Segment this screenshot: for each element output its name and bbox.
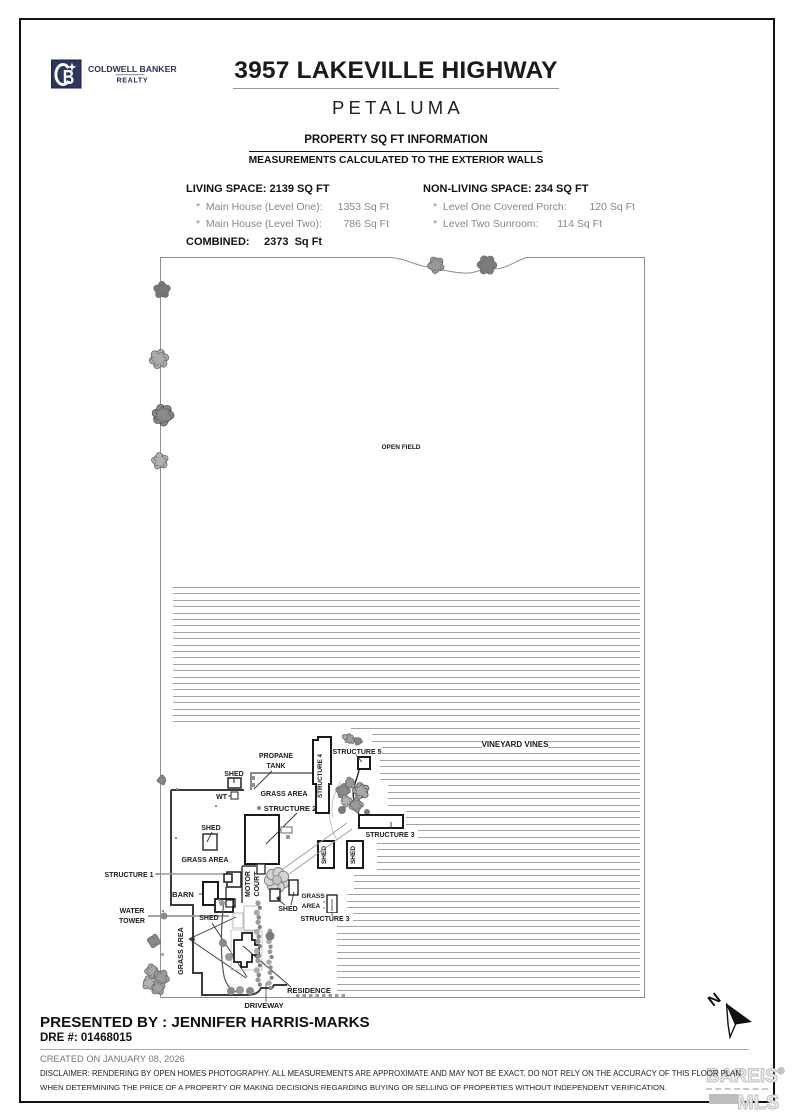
svg-text:AREA: AREA: [302, 903, 321, 910]
svg-text:GRASS: GRASS: [301, 893, 325, 900]
svg-text:GRASS AREA: GRASS AREA: [176, 927, 185, 975]
svg-text:STRUCTURE 1: STRUCTURE 1: [104, 872, 153, 879]
svg-text:N: N: [705, 990, 724, 1010]
svg-text:GRASS AREA: GRASS AREA: [260, 790, 307, 798]
svg-text:GRASS AREA: GRASS AREA: [181, 856, 228, 864]
svg-text:WATER: WATER: [120, 908, 145, 915]
svg-text:PROPANE: PROPANE: [259, 753, 293, 760]
svg-text:STRUCTURE 3: STRUCTURE 3: [300, 916, 349, 923]
svg-text:SHED: SHED: [224, 771, 243, 778]
svg-text:SHED: SHED: [278, 906, 297, 913]
svg-text:WT: WT: [216, 794, 228, 801]
svg-text:STRUCTURE 5: STRUCTURE 5: [332, 749, 381, 756]
svg-text:STRUCTURE 3: STRUCTURE 3: [365, 832, 414, 839]
svg-text:TANK: TANK: [267, 763, 286, 770]
svg-text:OPEN FIELD: OPEN FIELD: [381, 444, 420, 451]
svg-text:MOTOR: MOTOR: [245, 871, 252, 897]
svg-text:RESIDENCE: RESIDENCE: [287, 986, 331, 995]
svg-text:STRUCTURE 2: STRUCTURE 2: [264, 804, 317, 813]
svg-text:BARN: BARN: [172, 890, 194, 899]
svg-text:SHED: SHED: [350, 846, 357, 864]
svg-text:SHED: SHED: [199, 915, 218, 922]
svg-text:STRUCTURE 4: STRUCTURE 4: [317, 753, 324, 798]
svg-text:SHED: SHED: [201, 825, 220, 832]
svg-text:DRIVEWAY: DRIVEWAY: [244, 1001, 283, 1010]
svg-text:VINEYARD VINES: VINEYARD VINES: [482, 740, 550, 749]
svg-text:TOWER: TOWER: [119, 918, 145, 925]
